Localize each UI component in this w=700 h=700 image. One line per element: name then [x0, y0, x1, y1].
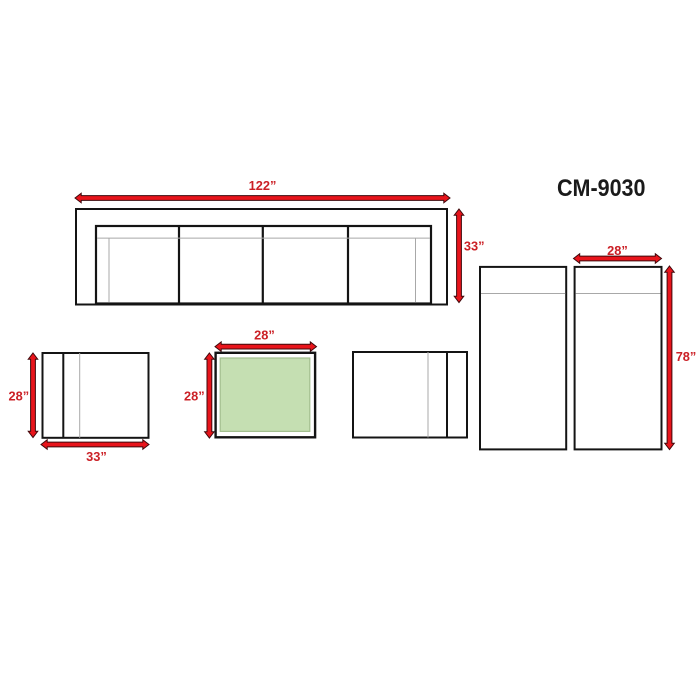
svg-text:28”: 28”	[254, 327, 275, 342]
svg-text:28”: 28”	[9, 388, 30, 403]
svg-text:CM-9030: CM-9030	[557, 175, 646, 202]
svg-text:122”: 122”	[249, 178, 277, 193]
svg-text:28”: 28”	[607, 243, 628, 258]
svg-text:78”: 78”	[676, 349, 697, 364]
svg-text:28”: 28”	[184, 388, 205, 403]
svg-text:33”: 33”	[464, 239, 485, 254]
svg-text:33”: 33”	[86, 449, 107, 464]
